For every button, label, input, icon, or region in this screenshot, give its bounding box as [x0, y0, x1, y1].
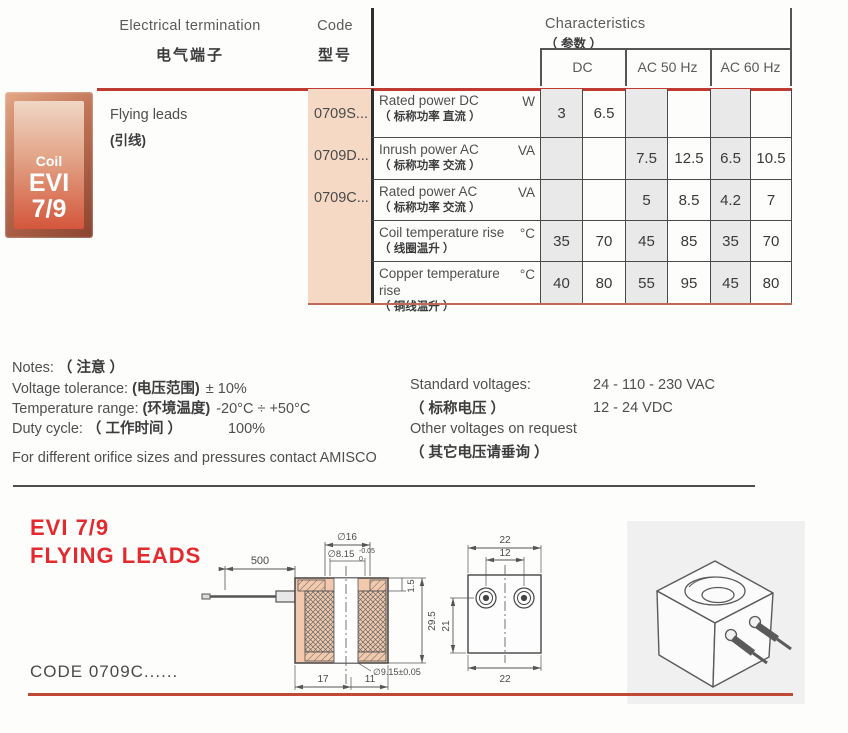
value-cell: 7	[750, 180, 792, 220]
value-cell	[582, 180, 625, 220]
value-cell	[750, 89, 792, 137]
notes-title-zh: （ 注意 ）	[58, 360, 124, 376]
note-zh: (环境温度)	[143, 401, 211, 417]
note-value: -20°C ÷ +50°C	[216, 401, 310, 417]
termination-flying-leads: Flying leads	[110, 107, 187, 123]
header-code-zh: 型号	[295, 44, 375, 65]
badge-line-79: 7/9	[32, 196, 67, 222]
note-zh: (电压范围)	[132, 381, 200, 397]
row-label-zh: （ 线圈温升 ）	[379, 242, 520, 257]
column-header-ac60: AC 60 Hz	[710, 59, 791, 75]
notes-title-en: Notes:	[12, 360, 54, 376]
code-0709c: 0709C...	[314, 190, 369, 206]
dim-dia-inner: ∅8.15	[328, 549, 355, 560]
drawing-title-line1: EVI 7/9	[30, 514, 109, 542]
table-row: Coil temperature rise （ 线圈温升 ） °C 35 70 …	[372, 221, 792, 262]
dim-width-left: 17	[317, 674, 329, 685]
dim-width-right: 11	[365, 674, 376, 685]
column-header-ac50: AC 50 Hz	[625, 59, 710, 75]
header-code-en: Code	[295, 18, 375, 34]
value-cell: 95	[667, 262, 710, 304]
dim-front-width-bottom: 22	[499, 674, 511, 685]
row-label-zh: （ 铜线温升 ）	[379, 300, 520, 315]
value-cell	[540, 138, 582, 179]
row-label-cell: Rated power DC （ 标称功率 直流 ） W	[372, 89, 540, 137]
table-row: Rated power DC （ 标称功率 直流 ） W 3 6.5	[372, 89, 792, 138]
termination-flying-leads-zh: (引线)	[110, 129, 146, 149]
coil-evi-badge-panel: Coil EVI 7/9	[14, 101, 84, 229]
dim-dia-top: ∅16	[337, 532, 357, 543]
note-amisco-footer: For different orifice sizes and pressure…	[12, 450, 377, 466]
code-0709s: 0709S...	[314, 106, 368, 122]
value-cell: 10.5	[750, 138, 792, 179]
row-label-zh: （ 标称功率 交流 ）	[379, 159, 518, 174]
row-label-en: Coil temperature rise	[379, 225, 520, 242]
note-en: Temperature range:	[12, 401, 139, 417]
drawing-title-line2: FLYING LEADS	[30, 542, 201, 570]
code-0709d: 0709D...	[314, 148, 369, 164]
value-cell	[667, 89, 710, 137]
datasheet-page: Electrical termination 电气端子 Code 型号 Char…	[0, 0, 848, 733]
table-row: Copper temperature rise （ 铜线温升 ） °C 40 8…	[372, 262, 792, 304]
dim-dia-inner-tol-lower: 0	[359, 556, 363, 563]
row-unit: W	[522, 93, 535, 137]
table-bottom-line	[308, 303, 792, 305]
dim-body-height: 29.5	[427, 611, 438, 631]
value-cell: 3	[540, 89, 582, 137]
header-code-divider-line	[371, 8, 374, 86]
value-cell: 35	[710, 221, 750, 261]
value-cell	[582, 138, 625, 179]
value-cell	[625, 89, 667, 137]
value-cell: 70	[750, 221, 792, 261]
column-header-dc: DC	[540, 59, 625, 75]
value-cell: 4.2	[710, 180, 750, 220]
value-cell	[710, 89, 750, 137]
header-characteristics-en: Characteristics	[545, 16, 645, 32]
row-label-cell: Coil temperature rise （ 线圈温升 ） °C	[372, 221, 540, 261]
value-cell: 85	[667, 221, 710, 261]
notes-title: Notes:（ 注意 ）	[12, 356, 124, 377]
note-voltage-tolerance: Voltage tolerance:(电压范围)± 10%	[12, 377, 247, 398]
drawing-code-label: CODE 0709C......	[30, 662, 178, 682]
value-cell: 5	[625, 180, 667, 220]
value-cell: 6.5	[582, 89, 625, 137]
row-label-en: Rated power AC	[379, 184, 518, 201]
standard-voltage-vac: 24 - 110 - 230 VAC	[593, 377, 715, 393]
section-separator-line	[13, 485, 755, 487]
note-en: Duty cycle:	[12, 421, 83, 437]
table-row: Inrush power AC （ 标称功率 交流 ） VA 7.5 12.5 …	[372, 138, 792, 180]
value-cell: 7.5	[625, 138, 667, 179]
row-unit: °C	[520, 225, 535, 261]
dim-flange-height: 1.5	[406, 579, 417, 592]
standard-voltages-label-en: Standard voltages:	[410, 377, 531, 393]
value-cell: 45	[625, 221, 667, 261]
iso-view-panel	[627, 521, 805, 704]
row-label-zh: （ 标称功率 交流 ）	[379, 201, 518, 216]
note-en: Voltage tolerance:	[12, 381, 128, 397]
value-cell: 45	[710, 262, 750, 304]
badge-line-coil: Coil	[36, 154, 62, 169]
value-cell: 80	[750, 262, 792, 304]
row-label-cell: Copper temperature rise （ 铜线温升 ） °C	[372, 262, 540, 304]
row-label-en: Inrush power AC	[379, 142, 518, 159]
dim-front-width-top: 22	[499, 535, 511, 546]
note-value: ± 10%	[206, 381, 247, 397]
row-label-cell: Rated power AC （ 标称功率 交流 ） VA	[372, 180, 540, 220]
coil-cross-section-drawing: 500 ∅16 ∅8.15 -0.05 0 1.5 29.5	[198, 522, 470, 702]
standard-voltage-vdc: 12 - 24 VDC	[593, 400, 673, 416]
value-cell: 40	[540, 262, 582, 304]
other-voltages-label-zh: （ 其它电压请垂询 ）	[410, 441, 549, 462]
row-label-zh: （ 标称功率 直流 ）	[379, 110, 522, 125]
subheader-top-line	[540, 48, 791, 50]
value-cell: 55	[625, 262, 667, 304]
value-cell: 8.5	[667, 180, 710, 220]
badge-line-evi: EVI	[29, 170, 69, 196]
note-zh: （ 工作时间 ）	[87, 421, 182, 437]
bottom-red-line	[28, 693, 793, 696]
row-unit: VA	[518, 142, 535, 179]
value-cell: 6.5	[710, 138, 750, 179]
characteristics-table: Rated power DC （ 标称功率 直流 ） W 3 6.5 Inrus…	[372, 89, 792, 304]
dim-front-hole-spacing: 12	[499, 548, 511, 559]
table-row: Rated power AC （ 标称功率 交流 ） VA 5 8.5 4.2 …	[372, 180, 792, 221]
value-cell	[540, 180, 582, 220]
row-label-en: Copper temperature rise	[379, 266, 520, 300]
value-cell: 80	[582, 262, 625, 304]
note-temperature-range: Temperature range:(环境温度)-20°C ÷ +50°C	[12, 397, 310, 418]
value-cell: 35	[540, 221, 582, 261]
header-electrical-termination-zh: 电气端子	[100, 44, 280, 65]
other-voltages-label-en: Other voltages on request	[410, 421, 577, 437]
standard-voltages-label-zh: （ 标称电压 ）	[410, 397, 505, 418]
row-label-en: Rated power DC	[379, 93, 522, 110]
dim-dia-inner-tol-upper: -0.05	[359, 548, 375, 555]
coil-isometric-drawing	[627, 521, 805, 704]
row-label-cell: Inrush power AC （ 标称功率 交流 ） VA	[372, 138, 540, 179]
coil-front-view-drawing: 22 12 21 22	[438, 528, 628, 703]
dim-lead-length: 500	[251, 555, 269, 567]
value-cell: 12.5	[667, 138, 710, 179]
note-duty-cycle: Duty cycle:（ 工作时间 ）100%	[12, 417, 265, 438]
row-unit: °C	[520, 266, 535, 304]
header-electrical-termination-en: Electrical termination	[100, 18, 280, 34]
dim-front-height-side: 21	[441, 620, 452, 632]
coil-evi-badge: Coil EVI 7/9	[5, 92, 93, 238]
row-unit: VA	[518, 184, 535, 220]
dim-dia-bottom: ∅9.15±0.05	[373, 667, 421, 677]
value-cell: 70	[582, 221, 625, 261]
note-value: 100%	[228, 421, 265, 437]
